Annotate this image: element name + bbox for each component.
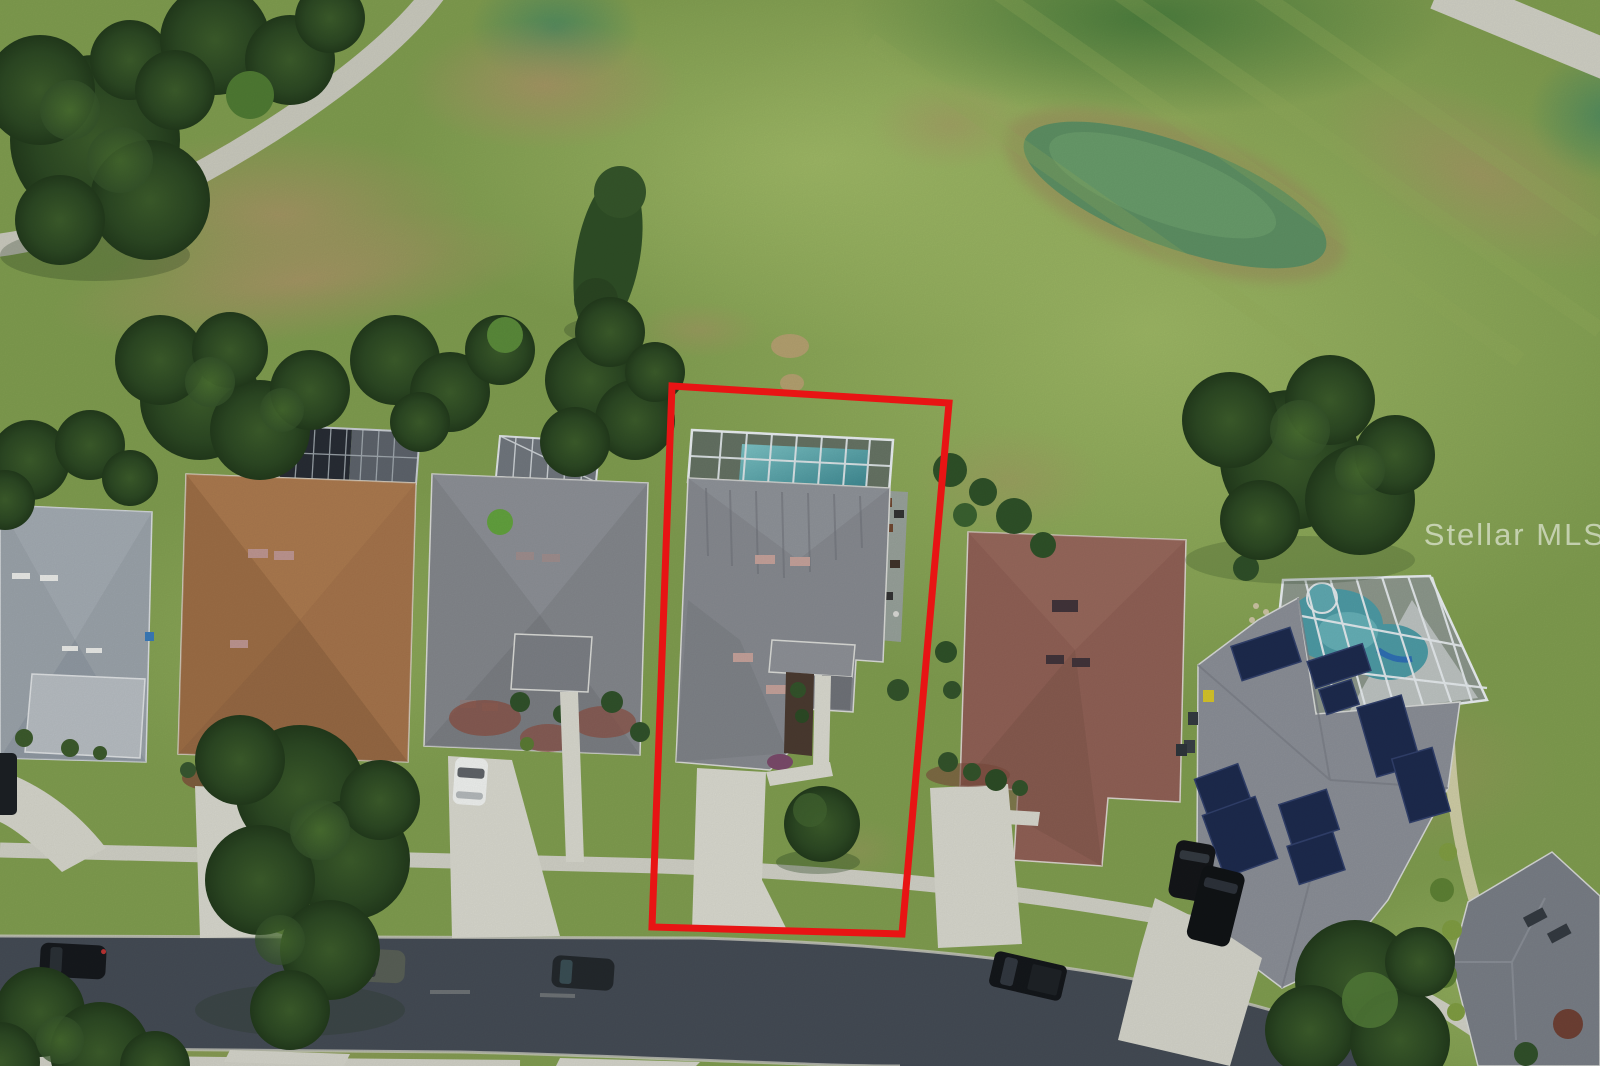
photo-grain (0, 0, 1600, 1066)
stellar-mls-watermark: Stellar MLS (1424, 517, 1600, 552)
aerial-photo: Stellar MLS (0, 0, 1600, 1066)
aerial-photo-canvas: Stellar MLS (0, 0, 1600, 1066)
